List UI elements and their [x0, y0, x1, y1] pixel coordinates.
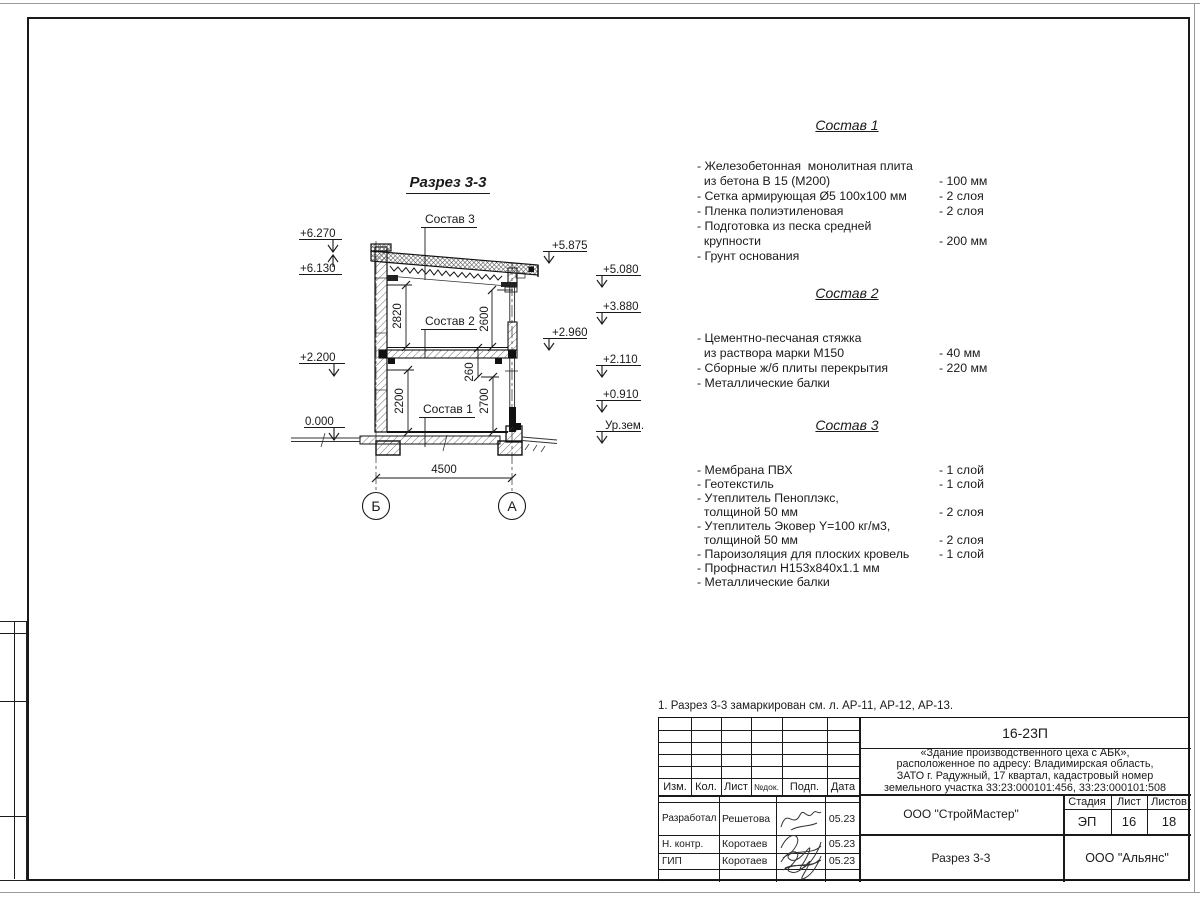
row1-name: Решетова	[719, 802, 776, 835]
stage-label: Стадия	[1063, 794, 1111, 809]
composition-3: Состав 3 - Мембрана ПВХ - 1 слой - Геоте…	[697, 418, 997, 589]
roof	[371, 251, 538, 292]
row3-date: 05.23	[825, 853, 859, 869]
item-text: - Пленка полиэтиленовая	[697, 204, 939, 219]
elev-5875: +5.875	[552, 240, 588, 252]
sheet-edge-bottom	[0, 892, 1200, 893]
composition-2-title: Состав 2	[697, 286, 997, 301]
item-text: - Сетка армирующая Ø5 100х100 мм	[697, 189, 939, 204]
sheet-edge-right	[1194, 3, 1195, 892]
list-item: - Подготовка из песка средней крупности …	[697, 219, 997, 249]
item-value: - 1 слой	[939, 547, 997, 561]
section-drawing: 2820 2600 2200 260 2700 4500 Б А +6.270 …	[285, 195, 685, 540]
col-kol: Кол.	[691, 778, 721, 795]
item-text: - Подготовка из песка средней крупности	[697, 219, 939, 249]
item-text: - Цементно-песчаная стяжка из раствора м…	[697, 331, 939, 361]
axis-letter-b: Б	[371, 498, 380, 514]
item-value: - 1 слой	[939, 477, 997, 491]
list-item: - Профнастил Н153х840х1.1 мм	[697, 561, 997, 575]
title-block: Изм. Кол. Лист №док. Подп. Дата Разработ…	[658, 717, 1190, 881]
item-text: - Пароизоляция для плоских кровель	[697, 547, 939, 561]
list-item: - Металлические балки	[697, 376, 997, 391]
axis-letter-a: А	[507, 498, 517, 514]
row3-name: Коротаев	[719, 853, 776, 869]
composition-2-items: - Цементно-песчаная стяжка из раствора м…	[697, 331, 997, 391]
elevation-marks-right: +5.875 +5.080 +3.880 +2.960 +2.110 +0.91…	[543, 240, 644, 443]
signature-3	[775, 846, 825, 886]
sheet-name: Разрез 3-3	[859, 834, 1063, 882]
org-name: ООО "СтройМастер"	[859, 794, 1063, 834]
elev-6130: +6.130	[300, 263, 336, 275]
item-value: - 220 мм	[939, 361, 997, 376]
item-value: - 1 слой	[939, 463, 997, 477]
item-text: - Металлические балки	[697, 376, 939, 391]
firm-name: ООО "Альянс"	[1063, 834, 1191, 882]
item-text: - Утеплитель Эковер Y=100 кг/м3, толщино…	[697, 519, 939, 547]
list-item: - Утеплитель Эковер Y=100 кг/м3, толщино…	[697, 519, 997, 547]
col-izm: Изм.	[659, 778, 691, 795]
row2-role: Н. контр.	[659, 835, 719, 853]
item-text: - Сборные ж/б плиты перекрытия	[697, 361, 939, 376]
elev-2200: +2.200	[300, 352, 336, 364]
section-title: Разрез 3-3	[406, 174, 490, 194]
row1-role: Разработал	[659, 802, 719, 835]
item-text: - Утеплитель Пеноплэкс, толщиной 50 мм	[697, 491, 939, 519]
composition-3-items: - Мембрана ПВХ - 1 слой - Геотекстиль - …	[697, 463, 997, 589]
elev-2110: +2.110	[603, 354, 638, 366]
left-filing-boxes	[0, 621, 27, 881]
floor-slab-mid	[379, 348, 517, 365]
sheets-total: 18	[1147, 809, 1191, 834]
elev-6270: +6.270	[300, 228, 336, 240]
elev-3880: +3.880	[603, 301, 639, 313]
composition-1-items: - Железобетонная монолитная плита из бет…	[697, 159, 997, 264]
list-item: - Пароизоляция для плоских кровель - 1 с…	[697, 547, 997, 561]
row1-date: 05.23	[825, 802, 859, 835]
row2-name: Коротаев	[719, 835, 776, 853]
sheet-label: Лист	[1111, 794, 1147, 809]
col-ndok: №док.	[751, 778, 782, 795]
elev-0000: 0.000	[305, 416, 334, 428]
col-data: Дата	[827, 778, 859, 795]
elevation-marks-left: +6.270 +6.130 +2.200 0.000	[299, 228, 345, 440]
dim-2600: 2600	[479, 306, 491, 332]
item-value: - 2 слоя	[939, 533, 997, 547]
sheet-edge-top	[0, 3, 1200, 4]
composition-3-title: Состав 3	[697, 418, 997, 433]
sheet-number: 16	[1111, 809, 1147, 834]
doc-number: 16-23П	[859, 718, 1191, 748]
axis-dimension: 4500 Б А	[363, 464, 526, 520]
item-value: - 100 мм	[939, 174, 997, 189]
list-item: - Грунт основания	[697, 249, 997, 264]
drawing-sheet: Разрез 3-3 Состав 3 Состав 2 Состав 1	[0, 0, 1200, 900]
list-item: - Утеплитель Пеноплэкс, толщиной 50 мм -…	[697, 491, 997, 519]
col-list: Лист	[721, 778, 751, 795]
composition-1-title: Состав 1	[697, 118, 997, 133]
item-value: - 40 мм	[939, 346, 997, 361]
elev-2960: +2.960	[552, 327, 588, 339]
sheet-note: 1. Разрез 3-3 замаркирован см. л. АР-11,…	[658, 700, 953, 712]
item-text: - Металлические балки	[697, 575, 939, 589]
list-item: - Геотекстиль - 1 слой	[697, 477, 997, 491]
item-value: - 2 слоя	[939, 204, 997, 219]
row2-date: 05.23	[825, 835, 859, 853]
elev-5080: +5.080	[603, 264, 639, 276]
composition-2: Состав 2 - Цементно-песчаная стяжка из р…	[697, 286, 997, 391]
item-value: - 200 мм	[939, 234, 997, 249]
list-item: - Цементно-песчаная стяжка из раствора м…	[697, 331, 997, 361]
item-text: - Грунт основания	[697, 249, 939, 264]
list-item: - Сборные ж/б плиты перекрытия - 220 мм	[697, 361, 997, 376]
composition-1: Состав 1 - Железобетонная монолитная пли…	[697, 118, 997, 264]
elev-ground: Ур.зем.	[605, 420, 644, 432]
list-item: - Мембрана ПВХ - 1 слой	[697, 463, 997, 477]
col-podp: Подп.	[782, 778, 827, 795]
elev-0910: +0.910	[603, 389, 639, 401]
dim-2200: 2200	[394, 388, 406, 414]
item-text: - Профнастил Н153х840х1.1 мм	[697, 561, 939, 575]
list-item: - Железобетонная монолитная плита из бет…	[697, 159, 997, 189]
item-value: - 2 слоя	[939, 189, 997, 204]
row3-role: ГИП	[659, 853, 719, 869]
dim-2700: 2700	[479, 388, 491, 414]
project-description: «Здание производственного цеха с АБК», р…	[859, 748, 1191, 794]
list-item: - Металлические балки	[697, 575, 997, 589]
dim-2820: 2820	[392, 303, 404, 329]
sheets-label: Листов	[1147, 794, 1191, 809]
dim-260: 260	[464, 362, 476, 381]
item-text: - Железобетонная монолитная плита из бет…	[697, 159, 939, 189]
dim-4500: 4500	[431, 464, 457, 476]
list-item: - Пленка полиэтиленовая - 2 слоя	[697, 204, 997, 219]
list-item: - Сетка армирующая Ø5 100х100 мм - 2 сло…	[697, 189, 997, 204]
item-text: - Геотекстиль	[697, 477, 939, 491]
item-value: - 2 слоя	[939, 505, 997, 519]
item-text: - Мембрана ПВХ	[697, 463, 939, 477]
stage-value: ЭП	[1063, 809, 1111, 834]
